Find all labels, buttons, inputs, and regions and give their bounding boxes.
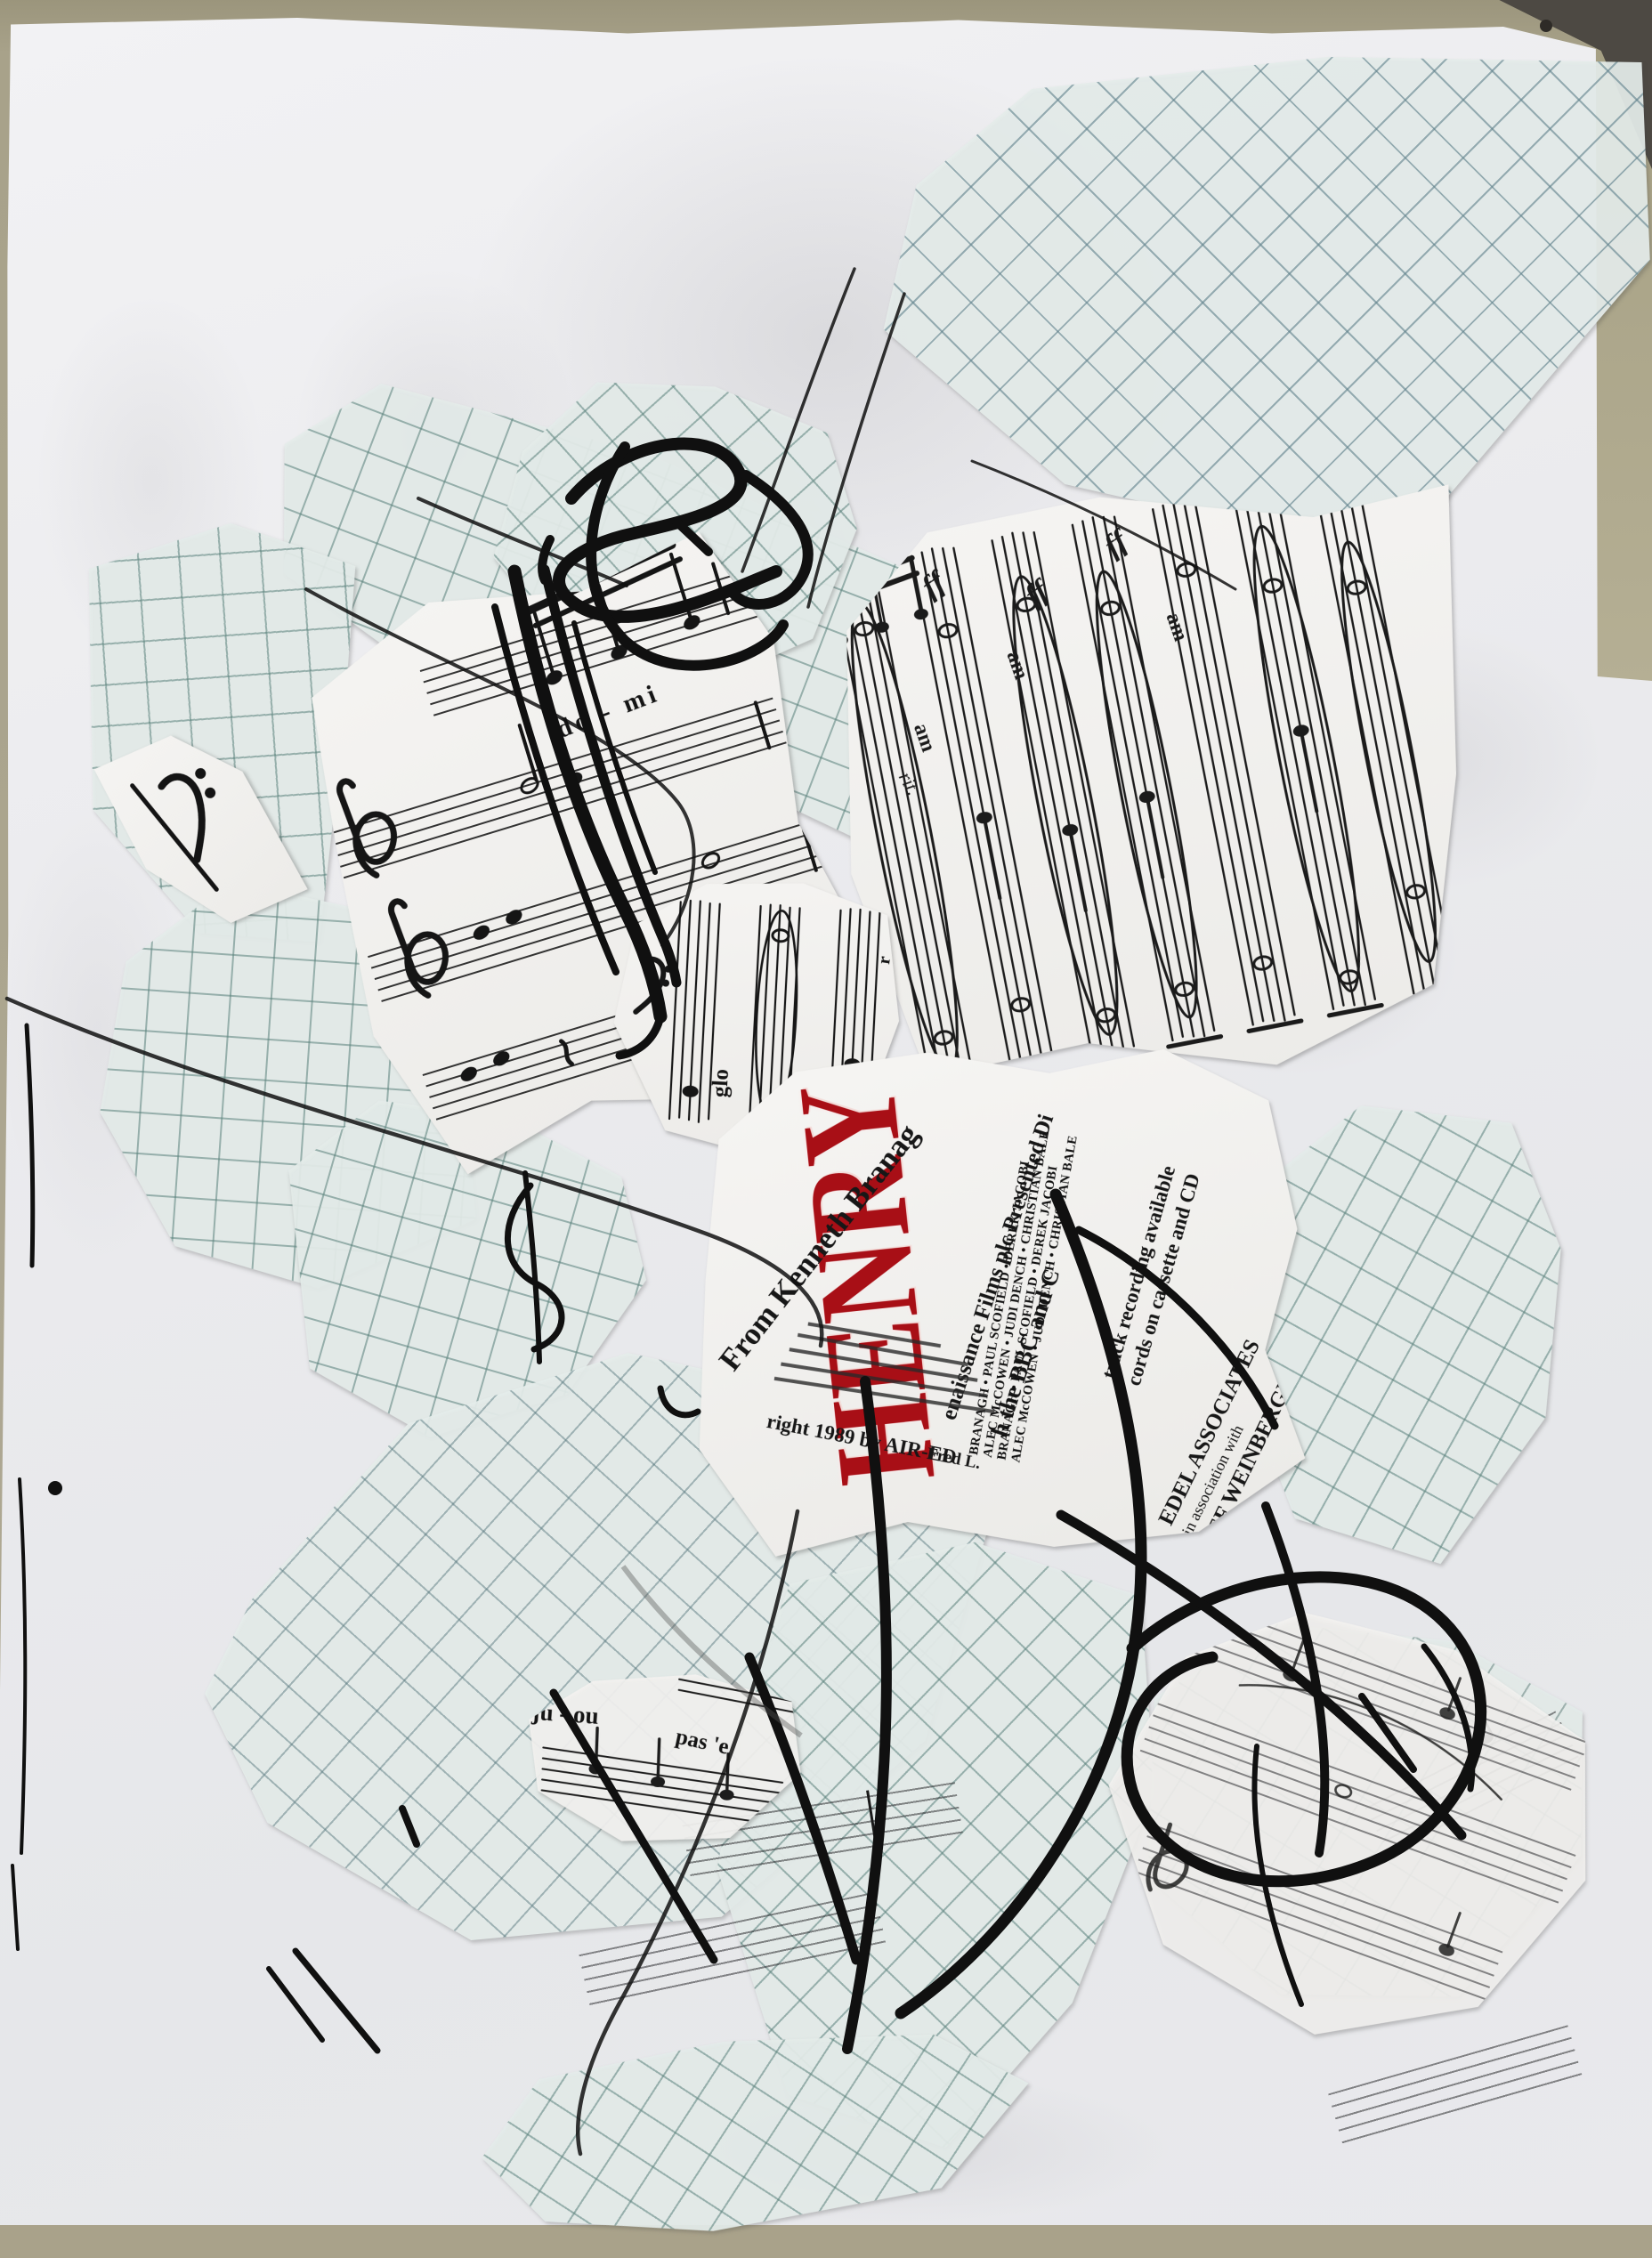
corner-dot [1540, 20, 1552, 32]
upside-down-lyric-fragment: ju - ou pas 'e [514, 1668, 804, 1847]
lyric-am: am [1162, 610, 1193, 644]
lyric-am: am [1001, 648, 1032, 683]
music-notation [514, 1668, 804, 1847]
sheet-music-piece-right: ff ff ff am am am rit. [826, 473, 1488, 1093]
collage-photo: do - mi [0, 0, 1652, 2225]
treble-clef-icon [336, 772, 404, 878]
treble-clef-icon [1143, 1824, 1199, 1899]
music-notation-vertical: ff ff ff am am am rit. [826, 473, 1488, 1093]
marking-rit: rit. [895, 768, 926, 799]
plate-number: B021 [621, 1123, 636, 1147]
henry-flyer-piece: HENRY From Kenneth Branag enaissance Fil… [685, 1040, 1308, 1558]
treble-clef-icon [388, 892, 456, 999]
dynamic-ff: ff [1098, 522, 1136, 562]
hatch-lines [762, 1307, 1032, 1432]
soundtrack-availability: track recording available cords on casse… [1096, 1162, 1206, 1388]
